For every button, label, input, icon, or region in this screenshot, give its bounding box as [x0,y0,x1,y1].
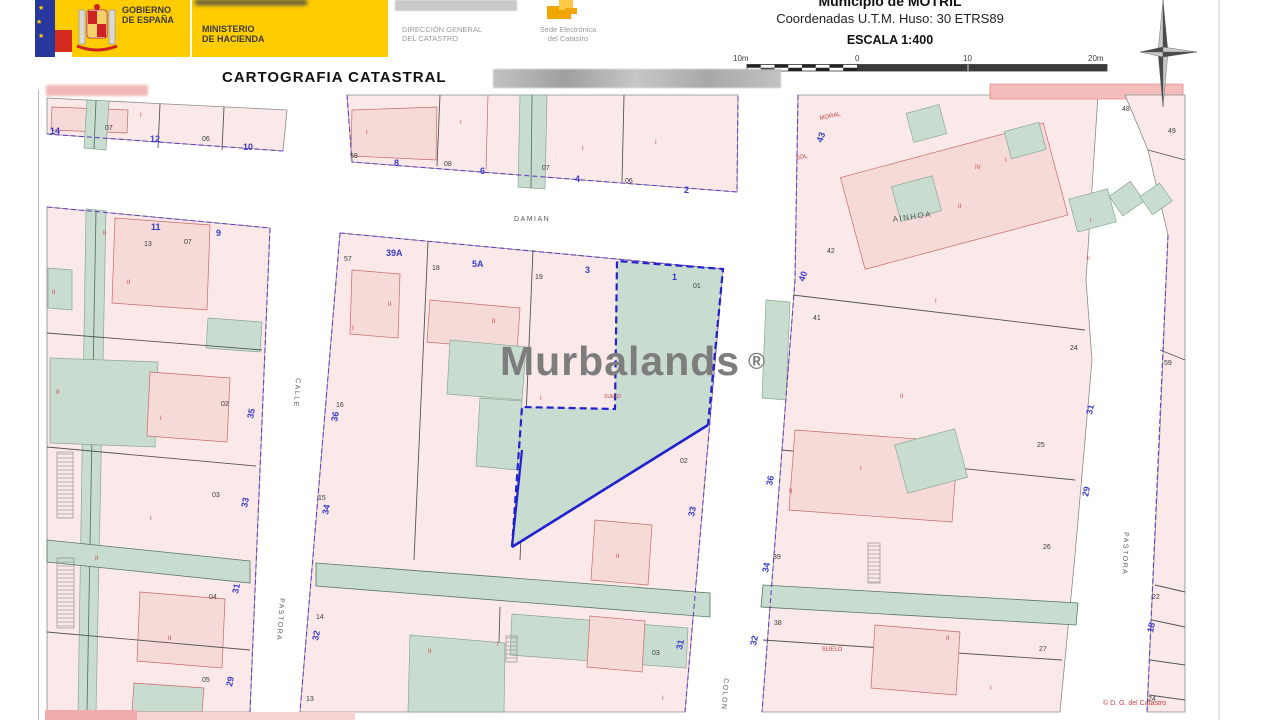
parcel-label: 34 [320,504,332,516]
parcel-label: II [900,394,904,400]
parcel-label: 22 [1152,594,1160,601]
parcel-label: 10 [243,142,253,152]
scale-bar [747,65,1107,72]
municipio-title: Municipio de MOTRIL [755,0,1025,9]
parcel-label: 06 [625,178,633,185]
sede-electronica-text: Sede Electrónica del Catastro [528,25,608,43]
parcel-label: 6 [480,166,485,176]
parcel-label: 59 [350,153,358,160]
parcel-label: 03 [212,492,220,499]
sede-electronica-icon [545,0,579,20]
parcel-label: 02 [221,401,229,408]
parcel-label: 06 [202,136,210,143]
parcel-label: 38 [774,620,782,627]
coordinates-text: Coordenadas U.T.M. Huso: 30 ETRS89 [755,11,1025,26]
parcel-label: 36 [329,411,341,423]
parcel-label: 2 [684,185,689,195]
street-label: PASTORA [1120,532,1129,576]
parcel-label: SUELO [822,647,843,653]
parcel-label: 8 [394,158,399,168]
parcel-label: II [428,649,432,655]
parcel-label: 33 [239,497,251,509]
parcel-label: 49 [1168,128,1176,135]
parcel-label: 29 [224,676,236,688]
spain-flag-red [55,30,72,52]
parcel-label: 5A [472,259,484,269]
scale-text: ESCALA 1:400 [755,33,1025,47]
street-label: DAMIAN [514,216,550,223]
street-label: COLON [720,678,729,711]
scale-label: 10m [733,54,749,63]
parcel-label: II [958,204,962,210]
parcel-label: 16 [336,402,344,409]
parcel-label: II [127,280,131,286]
eu-flag-icon: ★ ★ ★ [35,0,55,57]
parcel-label: 26 [1043,544,1051,551]
parcel-label: 07 [105,125,113,132]
redacted-bar [395,0,517,11]
parcel-label: 42 [827,248,835,255]
parcel-label: 04 [209,594,217,601]
block-top-center [347,95,738,192]
coat-of-arms-icon [75,2,119,54]
parcel-label: 36 [764,475,776,487]
parcel-label: 13 [306,696,314,703]
parcel-label: 31 [674,639,686,651]
direccion-general-text: DIRECCIÓN GENERAL DEL CATASTRO [402,25,482,43]
page-title: CARTOGRAFIA CATASTRAL [222,69,447,86]
parcel-label: II [56,390,60,396]
parcel-label: 57 [344,256,352,263]
parcel-label: 12 [150,134,160,144]
parcel-label: I [1090,218,1091,224]
parcel-label: 18 [1145,622,1157,634]
scale-label: 10 [963,54,972,63]
parcel-label: II [1087,256,1090,262]
parcel-label: 3 [585,265,590,275]
parcel-label: 01 [693,283,701,290]
block-central [300,233,723,712]
parcel-label: 33 [686,506,698,518]
parcel-label: 03 [652,650,660,657]
block-ainhoa [761,68,1116,712]
copyright: © D. G. del Catastro [1103,699,1166,707]
gobierno-text: GOBIERNO DE ESPAÑA [122,5,174,25]
parcel-label: II [492,319,496,325]
parcel-label: 41 [813,315,821,322]
parcel-label: 31 [230,583,242,595]
parcel-label: 07 [184,239,192,246]
parcel-label: 48 [1122,106,1130,113]
parcel-label: 14 [316,614,324,621]
parcel-label: II [52,290,56,296]
parcel-label: II [168,636,172,642]
redacted-pink-bar [46,85,148,96]
parcel-label: II [95,556,99,562]
scale-label: 20m [1088,54,1104,63]
spain-flag-icon [55,0,72,30]
street-label: PASTORA [275,598,285,642]
parcel-label: 31 [1084,404,1096,416]
gobierno-logo: ★ ★ ★ GOBIERNO DE ESPAÑA MINISTERIO DE H… [35,0,385,57]
registered-symbol: ® [748,348,765,374]
parcel-label: 32 [748,635,760,647]
parcel-label: 02 [680,458,688,465]
parcel-label: 05 [202,677,210,684]
ministerio-text: MINISTERIO DE HACIENDA [202,24,265,44]
block-right-column [1109,95,1185,712]
scale-label: 0 [855,54,860,63]
parcel-label: 9 [216,228,221,238]
parcel-label: 15 [318,495,326,502]
parcel-label: 08 [444,161,452,168]
parcel-label: 4 [575,174,580,184]
parcel-label: II [616,554,620,560]
parcel-label: II [946,636,950,642]
redacted-ministry-text [195,0,307,5]
parcel-label: II [388,302,392,308]
parcel-label: 18 [432,265,440,272]
parcel-label: 11 [151,222,161,232]
parcel-label: 32 [310,630,322,642]
parcel-label: 07 [542,165,550,172]
parcel-label: 1 [672,272,677,282]
parcel-label: SUELO [604,394,621,400]
parcel-label: 14 [50,126,60,136]
watermark: Murbalands® [500,338,765,385]
parcel-label: 27 [1039,646,1047,653]
parcel-label: 59 [1164,360,1172,367]
parcel-label: 34 [760,562,772,574]
parcel-label: 13 [144,241,152,248]
parcel-label: 29 [1080,486,1092,498]
parcel-label: II [789,489,793,495]
block-left [47,207,270,712]
parcel-label: 39 [773,554,781,561]
parcel-label: 19 [535,274,543,281]
parcel-label: 25 [1037,442,1045,449]
parcel-label: IV [975,165,981,171]
street-label: CALLE [292,378,301,408]
parcel-label: 35 [245,408,257,420]
parcel-label: 24 [1070,345,1078,352]
parcel-label: 39A [386,248,403,258]
redacted-reference [493,69,781,88]
parcel-label: II [103,231,107,237]
cadastral-sheet: { "header": { "gobierno": {"line1": "GOB… [0,0,1280,720]
